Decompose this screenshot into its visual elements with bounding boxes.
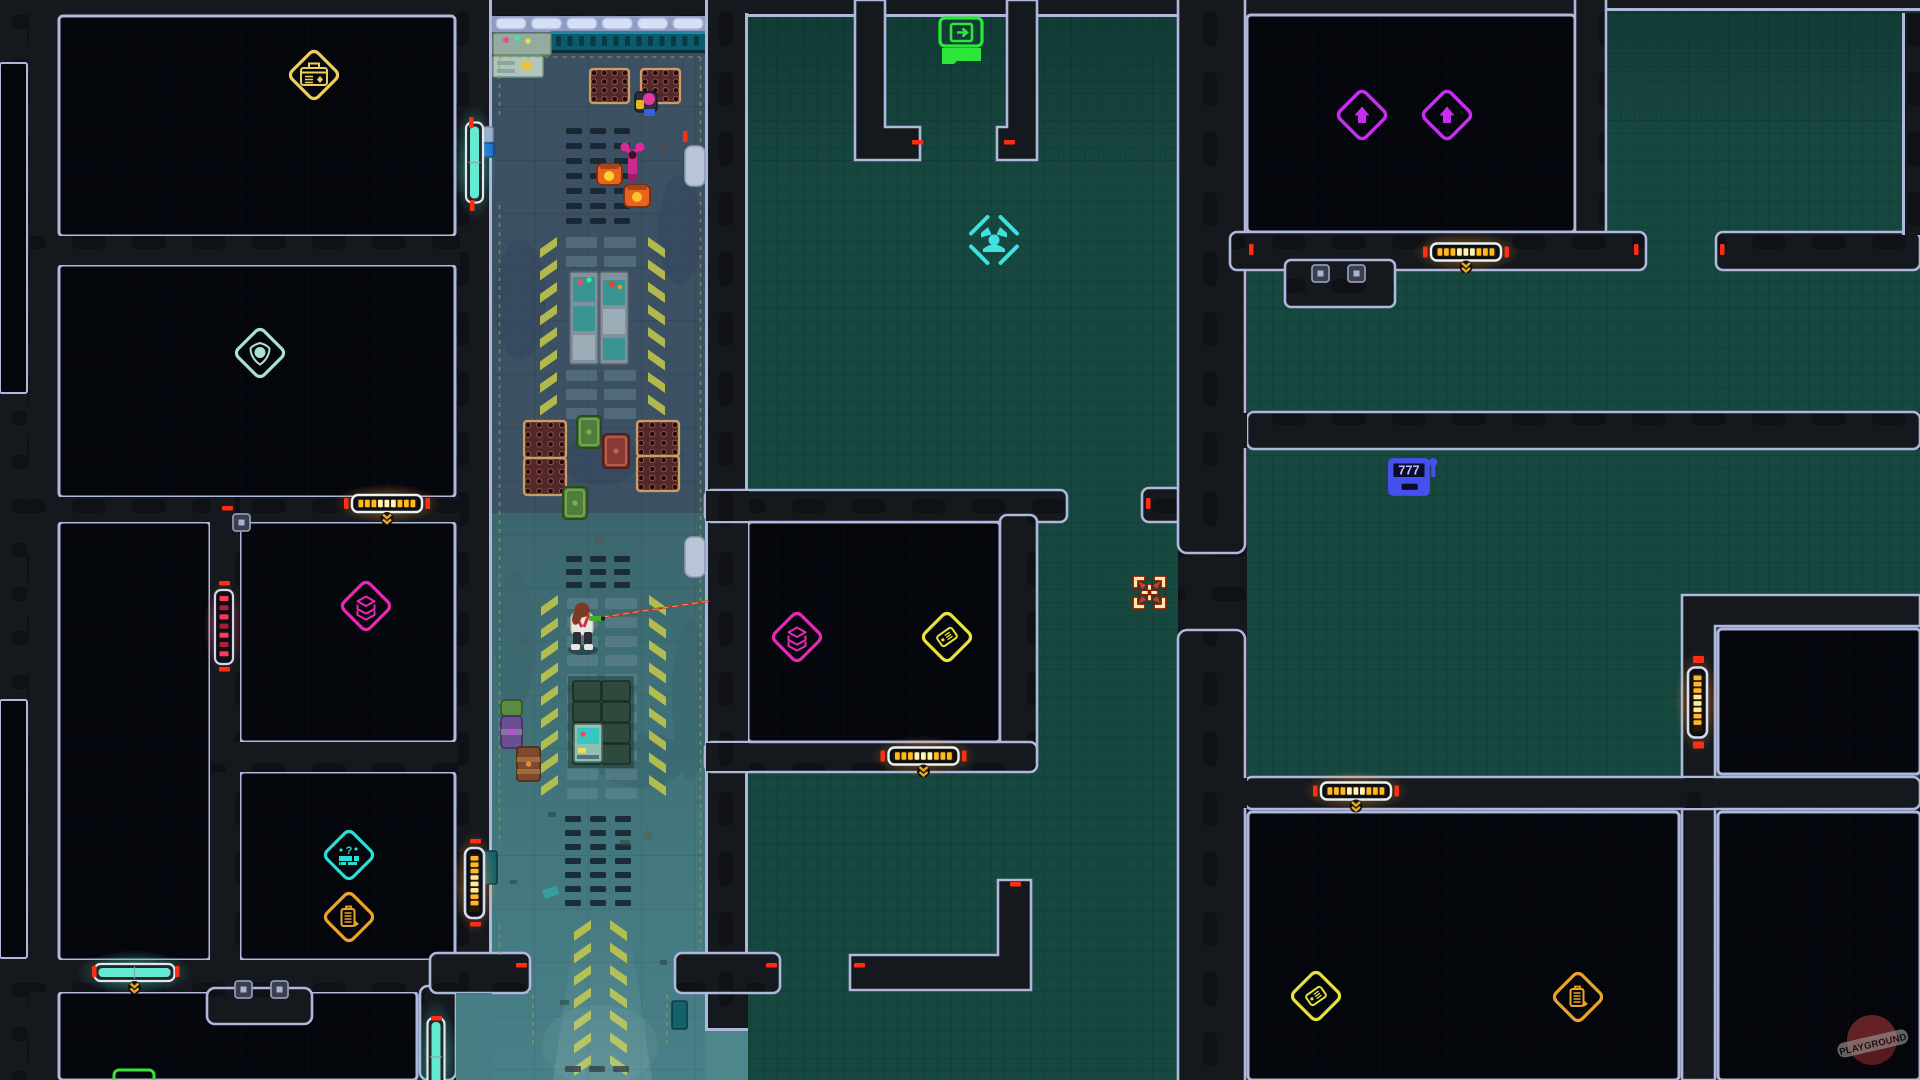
svg-text:777: 777 xyxy=(1398,463,1419,478)
svg-text:?: ? xyxy=(346,845,353,857)
